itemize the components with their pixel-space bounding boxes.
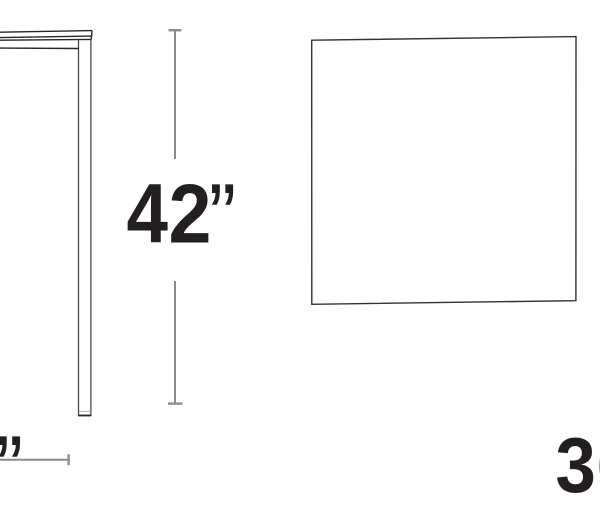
svg-text:4: 4 — [127, 166, 168, 260]
svg-text:3: 3 — [555, 422, 596, 509]
svg-text:2: 2 — [169, 168, 212, 261]
svg-text:”: ” — [209, 167, 236, 268]
svg-text:”: ” — [0, 418, 23, 519]
